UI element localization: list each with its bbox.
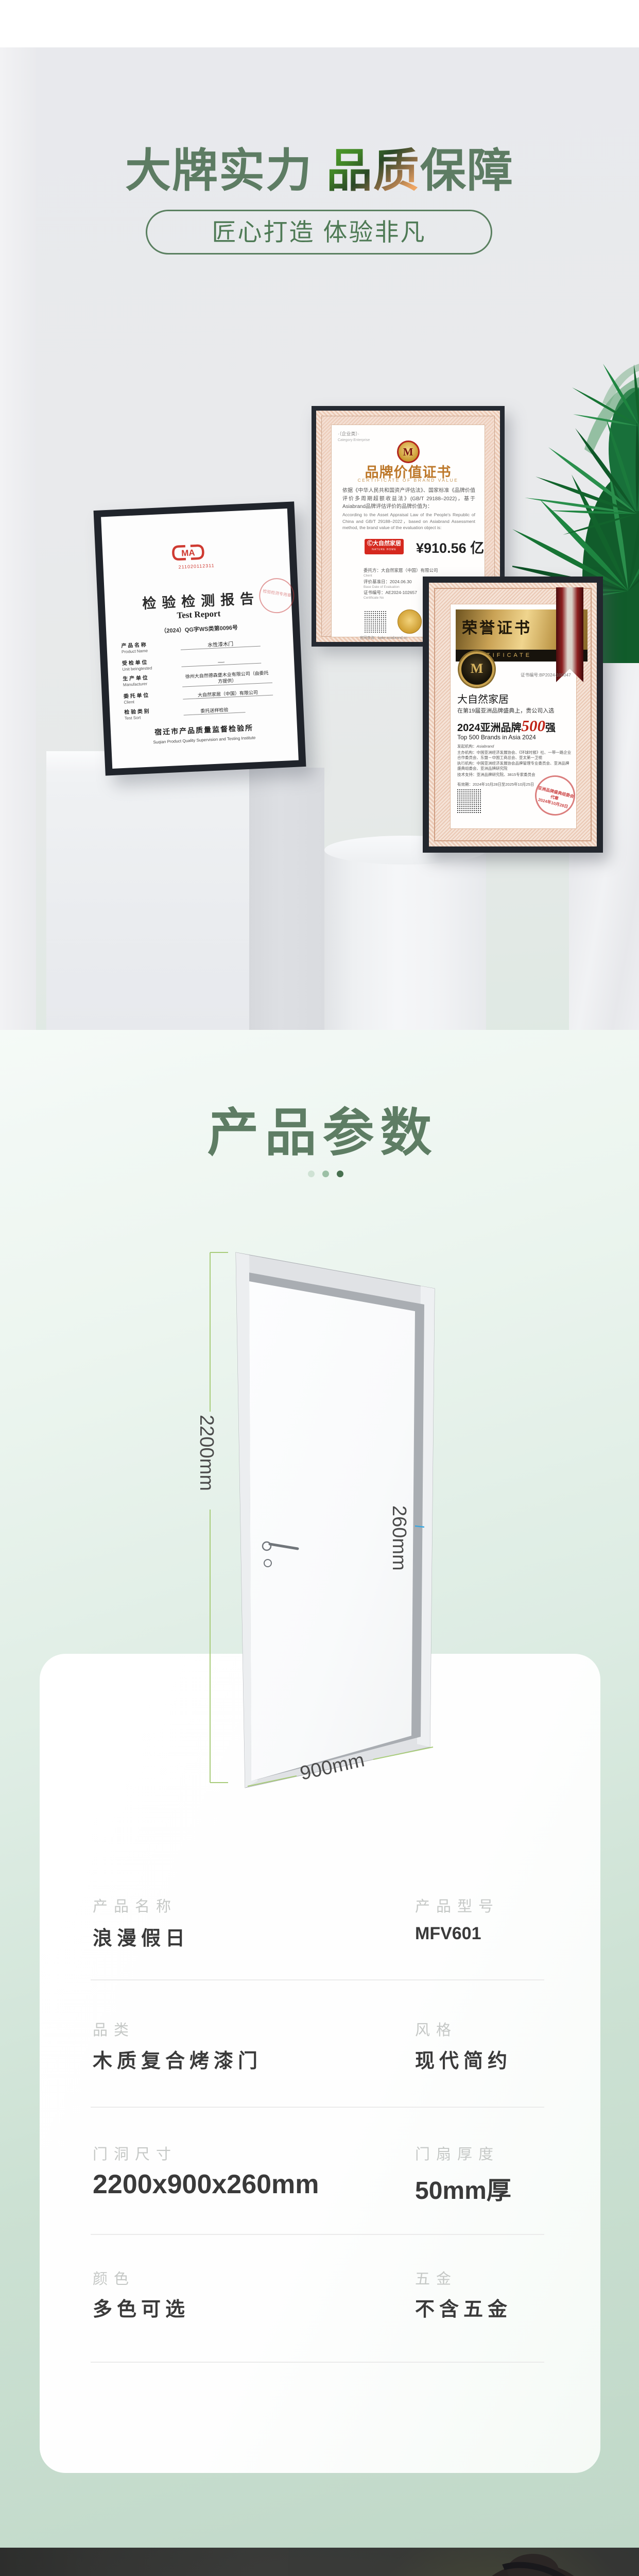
svg-text:260mm: 260mm [388,1505,410,1571]
svg-text:2200mm: 2200mm [196,1415,217,1491]
svg-text:MA: MA [181,548,195,558]
